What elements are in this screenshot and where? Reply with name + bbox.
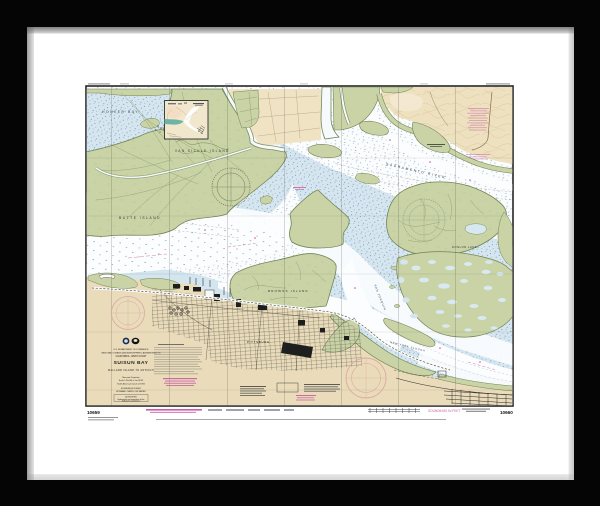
svg-text:U.S. DEPARTMENT OF COMMERCE: U.S. DEPARTMENT OF COMMERCE	[113, 348, 149, 351]
svg-text:CALIFORNIA - WEST COAST: CALIFORNIA - WEST COAST	[116, 355, 147, 358]
svg-text:BUTTE ISLAND: BUTTE ISLAND	[119, 216, 161, 220]
svg-text:10659: 10659	[87, 410, 100, 415]
svg-text:AT MEAN LOWER LOW WATER: AT MEAN LOWER LOW WATER	[116, 390, 146, 393]
svg-text:SUISUN BAY: SUISUN BAY	[114, 360, 149, 366]
svg-text:BROWNS ISLAND: BROWNS ISLAND	[268, 289, 309, 293]
svg-text:PITTSBURG: PITTSBURG	[247, 340, 270, 344]
svg-text:DONLON LAKE: DONLON LAKE	[452, 245, 477, 249]
svg-text:SOUNDINGS IN FEET: SOUNDINGS IN FEET	[428, 409, 460, 413]
svg-text:MALLARD ISLAND TO ANTIOCH: MALLARD ISLAND TO ANTIOCH	[108, 369, 154, 372]
svg-text:Mercator Projection: Mercator Projection	[122, 376, 139, 379]
svg-text:SOUNDINGS IN FEET: SOUNDINGS IN FEET	[121, 388, 142, 390]
svg-text:10660: 10660	[500, 410, 513, 415]
svg-text:North American Datum of 1983: North American Datum of 1983	[117, 382, 145, 385]
svg-text:NATIONAL OCEANIC AND ATMOSPHER: NATIONAL OCEANIC AND ATMOSPHERIC ADMINIS…	[102, 351, 161, 354]
svg-text:HONKER BAY: HONKER BAY	[102, 110, 139, 114]
svg-text:VAN SICKLE ISLAND: VAN SICKLE ISLAND	[175, 149, 230, 153]
svg-text:National Ocean Service: National Ocean Service	[122, 400, 140, 403]
svg-text:Scale 1:20,000 at Lat 38 02: Scale 1:20,000 at Lat 38 02	[119, 379, 144, 382]
